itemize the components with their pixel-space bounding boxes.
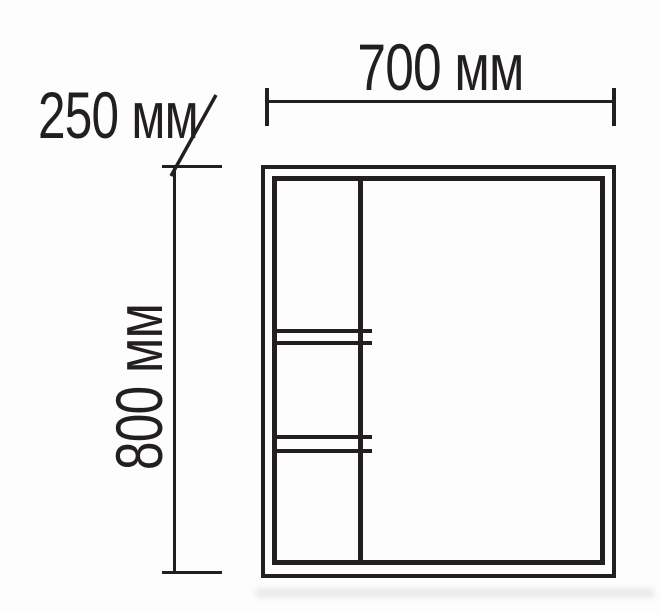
width-dimension-tick-left [265, 88, 269, 126]
height-dimension-tick-top [162, 165, 222, 168]
width-dimension-line [267, 100, 614, 103]
cabinet-inner-frame [272, 176, 605, 565]
cabinet-shelf-1-top-line [273, 329, 372, 333]
height-dimension-line [173, 166, 176, 574]
height-dimension-tick-bottom [162, 571, 222, 574]
cabinet-shelf-1-bottom-line [273, 341, 372, 345]
height-dimension-label: 800 мм [106, 301, 172, 473]
width-dimension-label: 700 мм [305, 34, 576, 100]
dimension-drawing: 700 мм 250 мм 800 мм [0, 0, 660, 613]
depth-leader-line [160, 85, 230, 185]
cabinet-vertical-divider [358, 178, 363, 563]
cabinet-shelf-2-top-line [273, 435, 372, 439]
cabinet-shelf-2-bottom-line [273, 449, 372, 453]
scan-shadow-artifact [255, 588, 655, 598]
width-dimension-tick-right [612, 88, 616, 126]
